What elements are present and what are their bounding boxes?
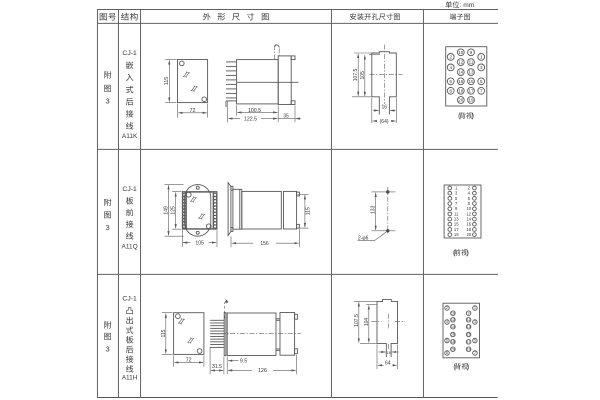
svg-text:107.5: 107.5 xyxy=(353,69,359,82)
svg-text:115: 115 xyxy=(164,77,170,85)
svg-text:3: 3 xyxy=(474,320,476,324)
svg-text:8: 8 xyxy=(446,351,448,355)
svg-text:A11H: A11H xyxy=(122,374,138,381)
svg-text:18: 18 xyxy=(458,88,464,93)
svg-text:9.5: 9.5 xyxy=(240,359,247,365)
svg-text:122.5: 122.5 xyxy=(244,116,257,122)
svg-text:11: 11 xyxy=(469,60,474,65)
svg-text:CJ-1: CJ-1 xyxy=(122,186,137,193)
svg-text:6: 6 xyxy=(446,339,448,343)
svg-text:149: 149 xyxy=(164,206,170,215)
svg-text:mm: mm xyxy=(463,2,474,9)
svg-text:A11K: A11K xyxy=(122,133,138,140)
svg-text:(64): (64) xyxy=(380,119,389,125)
svg-text:20: 20 xyxy=(451,347,455,351)
svg-text:133: 133 xyxy=(371,205,377,214)
svg-text:107.5: 107.5 xyxy=(354,314,360,327)
svg-text:1: 1 xyxy=(474,306,476,310)
svg-text:35: 35 xyxy=(283,113,289,119)
svg-text:4: 4 xyxy=(446,320,448,324)
svg-text:13: 13 xyxy=(467,325,471,329)
svg-text:15: 15 xyxy=(468,79,474,84)
svg-text:15: 15 xyxy=(467,333,471,337)
svg-text:19: 19 xyxy=(467,347,471,351)
svg-text:12: 12 xyxy=(458,60,464,65)
svg-text:115: 115 xyxy=(305,207,311,215)
svg-text:115: 115 xyxy=(161,329,167,337)
svg-text:105: 105 xyxy=(195,240,204,246)
svg-text:9: 9 xyxy=(468,311,470,315)
svg-text:20: 20 xyxy=(466,232,471,237)
svg-text:3: 3 xyxy=(106,345,110,354)
svg-text:7: 7 xyxy=(474,351,476,355)
svg-text:17: 17 xyxy=(468,88,474,93)
svg-text:CJ-1: CJ-1 xyxy=(122,296,137,303)
svg-text:18: 18 xyxy=(451,340,455,344)
svg-text:125: 125 xyxy=(171,206,177,215)
svg-text:): ) xyxy=(467,250,469,257)
svg-text:72: 72 xyxy=(186,358,192,364)
svg-text:2: 2 xyxy=(446,306,448,310)
svg-text:64: 64 xyxy=(385,361,391,367)
svg-text:16: 16 xyxy=(451,333,455,337)
svg-text:16: 16 xyxy=(382,105,388,111)
svg-text:12: 12 xyxy=(451,318,455,322)
svg-text:19: 19 xyxy=(454,232,459,237)
svg-text:): ) xyxy=(472,113,474,120)
svg-text:104: 104 xyxy=(364,318,370,327)
svg-text:2-φ6: 2-φ6 xyxy=(358,235,369,241)
svg-text:11: 11 xyxy=(467,318,471,322)
svg-text:31.5: 31.5 xyxy=(212,364,222,370)
svg-text:3: 3 xyxy=(106,223,110,232)
svg-text:16: 16 xyxy=(386,350,391,355)
svg-text::: : xyxy=(460,2,462,9)
svg-text:CJ-1: CJ-1 xyxy=(122,50,137,57)
svg-text:19: 19 xyxy=(468,98,474,103)
svg-text:156: 156 xyxy=(260,241,269,247)
svg-text:20: 20 xyxy=(458,98,464,103)
svg-text:72: 72 xyxy=(190,108,196,114)
svg-text:100.5: 100.5 xyxy=(248,108,261,114)
svg-text:105: 105 xyxy=(360,71,366,80)
svg-text:14: 14 xyxy=(458,70,464,75)
svg-text:17: 17 xyxy=(467,340,471,344)
svg-text:3: 3 xyxy=(106,97,110,106)
svg-text:13: 13 xyxy=(468,70,474,75)
svg-text:10: 10 xyxy=(458,50,464,55)
svg-text:): ) xyxy=(467,364,469,371)
svg-text:16: 16 xyxy=(458,79,464,84)
svg-text:126: 126 xyxy=(258,368,267,374)
svg-text:A11Q: A11Q xyxy=(122,243,138,250)
svg-text:5: 5 xyxy=(474,339,476,343)
svg-text:10: 10 xyxy=(451,311,455,315)
svg-text:14: 14 xyxy=(451,325,455,329)
